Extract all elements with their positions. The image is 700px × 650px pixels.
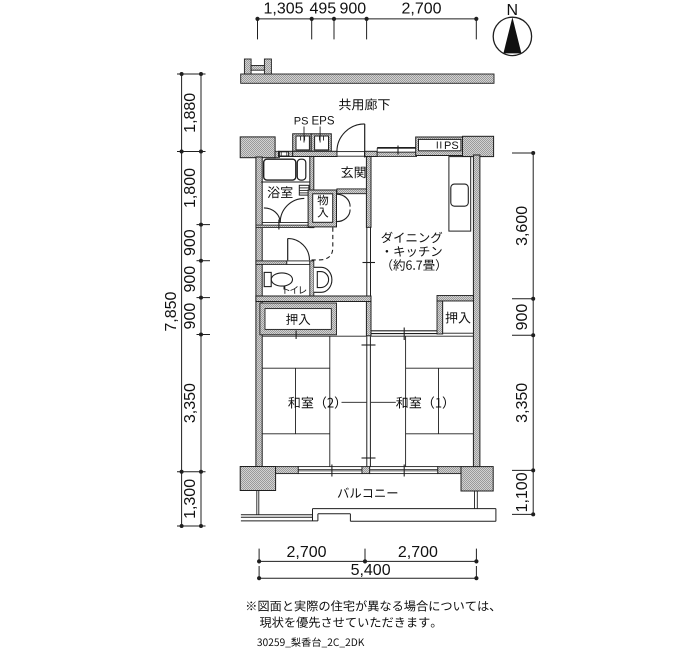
- svg-text:495: 495: [309, 1, 336, 18]
- svg-text:7,850: 7,850: [163, 291, 180, 331]
- svg-text:900: 900: [182, 266, 199, 293]
- svg-text:2,700: 2,700: [286, 544, 326, 561]
- svg-text:5,400: 5,400: [351, 562, 391, 579]
- svg-text:3,350: 3,350: [182, 383, 199, 423]
- svg-text:1,305: 1,305: [263, 1, 303, 18]
- svg-text:3,600: 3,600: [514, 206, 531, 246]
- svg-text:N: N: [507, 2, 519, 19]
- svg-text:PS: PS: [294, 115, 309, 127]
- svg-text:1,800: 1,800: [182, 168, 199, 208]
- svg-text:1,300: 1,300: [182, 479, 199, 519]
- svg-text:900: 900: [182, 303, 199, 330]
- svg-text:2,700: 2,700: [398, 544, 438, 561]
- svg-text:PS: PS: [444, 140, 459, 152]
- svg-text:1,880: 1,880: [182, 93, 199, 133]
- svg-text:3,350: 3,350: [514, 383, 531, 423]
- svg-text:1,100: 1,100: [514, 472, 531, 512]
- svg-text:2,700: 2,700: [401, 1, 441, 18]
- svg-text:900: 900: [182, 229, 199, 256]
- svg-text:EPS: EPS: [312, 115, 335, 127]
- svg-text:900: 900: [339, 1, 366, 18]
- svg-text:900: 900: [514, 304, 531, 331]
